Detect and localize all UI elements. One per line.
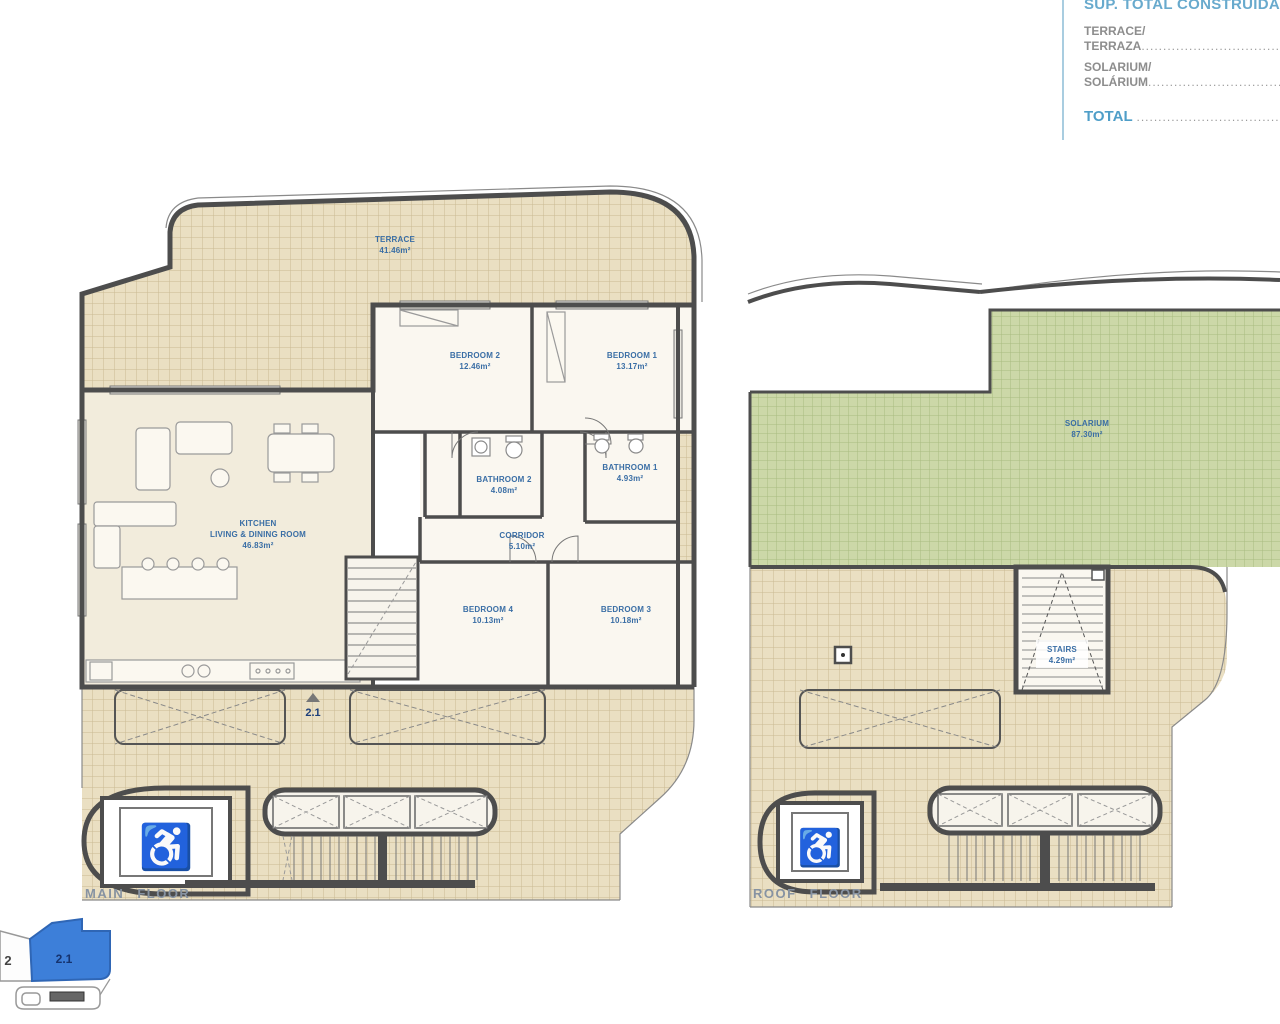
roof-floor-caption: ROOF FLOOR bbox=[753, 886, 863, 901]
room-label-bathroom2-area: 4.08m² bbox=[491, 486, 518, 495]
key-plan: 2 2.1 bbox=[0, 903, 130, 1023]
room-label-bathroom2-name: BATHROOM 2 bbox=[476, 475, 532, 484]
room-label-kitchen-area: 46.83m² bbox=[242, 541, 273, 550]
total-label: TOTAL bbox=[1084, 108, 1132, 125]
roof-outer-boundary bbox=[748, 271, 1280, 302]
terrace-leader-dots: ........................................… bbox=[1141, 39, 1280, 53]
roof-floor-plan: STAIRS 4.29m² ♿ SOLARIUM 87.30m² bbox=[740, 262, 1280, 908]
main-floor-caption: MAIN FLOOR bbox=[85, 886, 190, 901]
room-label-bathroom1-name: BATHROOM 1 bbox=[602, 463, 658, 472]
room-label-terrace-area: 41.46m² bbox=[379, 246, 410, 255]
key-plan-highlighted-unit: 2.1 bbox=[30, 919, 110, 981]
room-label-bedroom2-name: BEDROOM 2 bbox=[450, 351, 501, 360]
roof-solarium-area bbox=[750, 310, 1280, 567]
roof-stairs-enclosure: STAIRS 4.29m² bbox=[1016, 567, 1108, 692]
roof-elevator: ♿ bbox=[760, 793, 874, 892]
unit-marker-label: 2.1 bbox=[305, 707, 320, 719]
summary-total-row: TOTAL ..................................… bbox=[1084, 108, 1280, 125]
main-interior-stairs bbox=[346, 557, 418, 679]
wheelchair-icon: ♿ bbox=[798, 827, 843, 868]
room-label-bedroom2-area: 12.46m² bbox=[459, 362, 490, 371]
room-label-bedroom4-name: BEDROOM 4 bbox=[463, 605, 514, 614]
room-label-bedroom1-area: 13.17m² bbox=[616, 362, 647, 371]
room-label-bedroom3-name: BEDROOM 3 bbox=[601, 605, 652, 614]
roof-service-box bbox=[835, 647, 851, 663]
solarium-label-line2: SOLÁRIUM bbox=[1084, 75, 1148, 89]
main-floor-plan: 2.1 ♿ TERRACE 41.46m² BEDROOM 2 12.46m² … bbox=[70, 182, 710, 910]
room-label-roof-stairs-area: 4.29m² bbox=[1049, 656, 1076, 665]
terrace-label-line2: TERRAZA bbox=[1084, 39, 1141, 53]
room-label-bedroom3-area: 10.18m² bbox=[610, 616, 641, 625]
surface-summary-panel: SUP. TOTAL CONSTRUIDA TERRACE/ TERRAZA..… bbox=[1084, 0, 1280, 150]
summary-row-solarium: SOLARIUM/ SOLÁRIUM......................… bbox=[1084, 60, 1280, 90]
key-plan-garage-block bbox=[16, 979, 110, 1009]
main-elevator: ♿ bbox=[84, 788, 248, 894]
solarium-label-line1: SOLARIUM/ bbox=[1084, 60, 1151, 74]
room-label-corridor-area: 5.10m² bbox=[509, 542, 536, 551]
key-plan-unit-label: 2.1 bbox=[56, 952, 73, 966]
room-label-bathroom1-area: 4.93m² bbox=[617, 474, 644, 483]
solarium-leader-dots: ........................................… bbox=[1148, 75, 1280, 89]
summary-row-terrace: TERRACE/ TERRAZA........................… bbox=[1084, 24, 1280, 54]
room-label-kitchen-name: KITCHEN bbox=[240, 519, 277, 528]
summary-title: SUP. TOTAL CONSTRUIDA bbox=[1084, 0, 1280, 13]
room-label-kitchen-name2: LIVING & DINING ROOM bbox=[210, 530, 306, 539]
room-label-corridor-name: CORRIDOR bbox=[499, 531, 544, 540]
wheelchair-icon: ♿ bbox=[139, 822, 194, 872]
room-label-solarium-name: SOLARIUM bbox=[1065, 419, 1109, 428]
terrace-label-line1: TERRACE/ bbox=[1084, 24, 1145, 38]
room-label-solarium-area: 87.30m² bbox=[1071, 430, 1102, 439]
room-label-terrace-name: TERRACE bbox=[375, 235, 416, 244]
room-label-bedroom4-area: 10.13m² bbox=[472, 616, 503, 625]
total-leader-dots: ........................................… bbox=[1137, 110, 1280, 124]
summary-divider-line bbox=[1062, 0, 1064, 140]
room-label-bedroom1-name: BEDROOM 1 bbox=[607, 351, 658, 360]
room-label-roof-stairs-name: STAIRS bbox=[1047, 645, 1077, 654]
key-plan-neighbor-unit: 2 bbox=[0, 931, 32, 981]
key-plan-neighbor-label: 2 bbox=[4, 953, 11, 968]
